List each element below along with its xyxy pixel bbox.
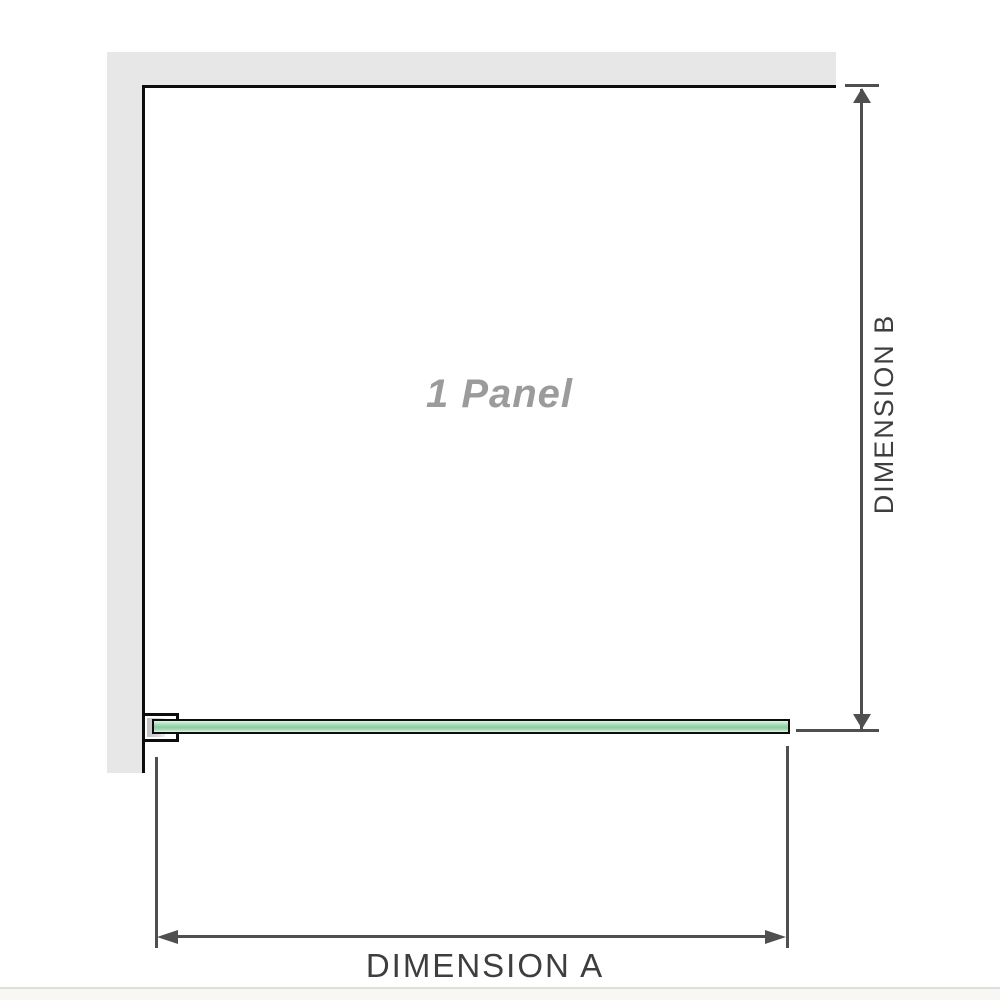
arrow-left-icon (157, 930, 178, 944)
panel-dimension-diagram: 1 Panel DIMENSION B DIMENSION A (0, 0, 1000, 1000)
dimension-a-line (165, 935, 779, 938)
dimension-b-bottom-tick (796, 729, 879, 732)
bottom-strip (0, 989, 1000, 1000)
panel-outline-top-edge (143, 85, 836, 88)
arrow-right-icon (765, 930, 786, 944)
dimension-b-label: DIMENSION B (869, 264, 899, 564)
arrow-down-icon (853, 714, 871, 729)
wall-left (107, 52, 143, 773)
dimension-a-left-extension-line (155, 757, 158, 948)
wall-top (107, 52, 836, 85)
dimension-b-line (860, 89, 863, 729)
glass-panel-bar (152, 719, 790, 734)
panel-count-label: 1 Panel (153, 372, 846, 417)
arrow-up-icon (853, 88, 871, 103)
dimension-a-right-extension-line (786, 746, 789, 948)
panel-outline-left-edge (142, 85, 145, 773)
dimension-a-label: DIMENSION A (325, 947, 645, 985)
dimension-b-top-tick (845, 84, 879, 87)
